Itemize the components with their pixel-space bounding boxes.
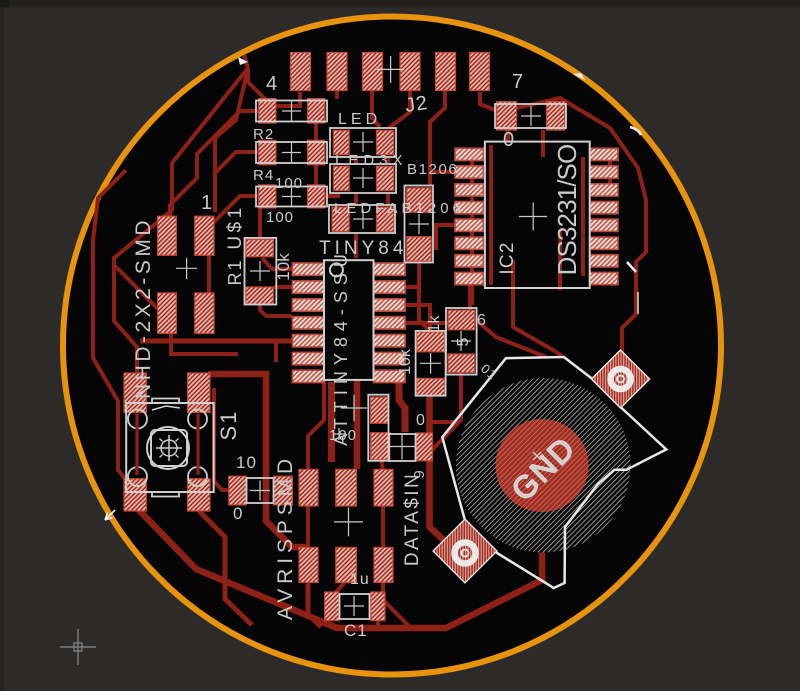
svg-text:LED3X: LED3X [335, 152, 408, 169]
svg-text:NHD-2X2-SMD: NHD-2X2-SMD [132, 217, 155, 399]
svg-text:DS3231/SO: DS3231/SO [552, 145, 582, 276]
svg-text:S1: S1 [216, 410, 241, 441]
svg-text:R4: R4 [253, 167, 274, 184]
svg-text:DATA$IN: DATA$IN [402, 472, 423, 566]
svg-text:5: 5 [455, 337, 472, 346]
svg-text:6: 6 [477, 312, 487, 329]
svg-text:1u: 1u [350, 571, 370, 588]
svg-text:0: 0 [233, 504, 243, 523]
svg-text:100: 100 [266, 209, 294, 226]
svg-text:R2: R2 [253, 126, 274, 143]
svg-text:ATTINY84-SSU: ATTINY84-SSU [331, 248, 351, 446]
svg-text:10k: 10k [397, 348, 414, 375]
svg-text:1: 1 [201, 192, 213, 214]
svg-text:LEDFAB1206: LEDFAB1206 [334, 200, 465, 217]
svg-text:0: 0 [416, 412, 426, 429]
svg-text:1k: 1k [426, 315, 443, 333]
svg-text:10k: 10k [274, 253, 293, 281]
svg-text:IC2: IC2 [497, 241, 518, 274]
svg-text:0: 0 [503, 129, 515, 151]
svg-text:100: 100 [275, 175, 303, 192]
svg-text:7: 7 [512, 71, 524, 93]
svg-text:J2: J2 [404, 92, 430, 117]
svg-text:4: 4 [266, 73, 278, 95]
svg-text:LED: LED [338, 111, 381, 128]
svg-text:10: 10 [236, 453, 257, 472]
svg-text:B1206: B1206 [407, 161, 458, 178]
svg-text:U$1: U$1 [225, 204, 246, 249]
svg-text:R1: R1 [225, 258, 245, 285]
svg-text:AVRISPSMD: AVRISPSMD [274, 454, 297, 620]
svg-text:C1: C1 [344, 621, 368, 640]
